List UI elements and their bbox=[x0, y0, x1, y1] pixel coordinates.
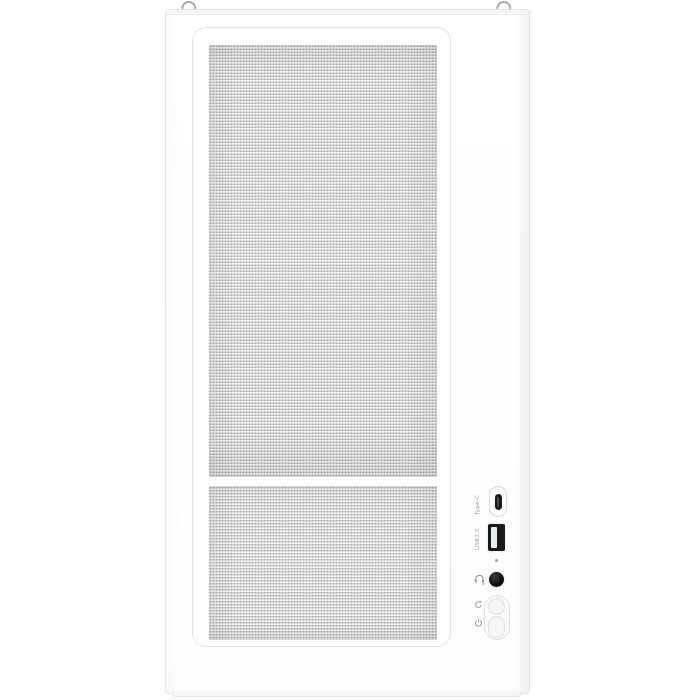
mesh-panel-top bbox=[209, 45, 437, 477]
case-top-edge bbox=[166, 10, 527, 15]
mesh-panel-bottom bbox=[209, 486, 437, 640]
usb-c-port bbox=[489, 486, 507, 517]
product-photo: Type-C USB3.0 bbox=[0, 0, 700, 700]
usb-c-port-label: Type-C bbox=[476, 489, 482, 515]
power-icon bbox=[474, 618, 483, 627]
usb-a-port bbox=[488, 524, 505, 551]
power-button bbox=[488, 616, 505, 638]
usb-a-port-label: USB3.0 bbox=[476, 524, 482, 550]
audio-jack bbox=[489, 572, 504, 587]
case-bottom-trim bbox=[172, 691, 522, 697]
headset-icon bbox=[474, 573, 485, 585]
usb-a-connector-tab bbox=[491, 527, 498, 548]
reset-button bbox=[488, 598, 505, 615]
reset-icon bbox=[474, 600, 483, 609]
led-indicator-hole bbox=[495, 559, 498, 562]
usb-c-connector bbox=[495, 494, 502, 511]
